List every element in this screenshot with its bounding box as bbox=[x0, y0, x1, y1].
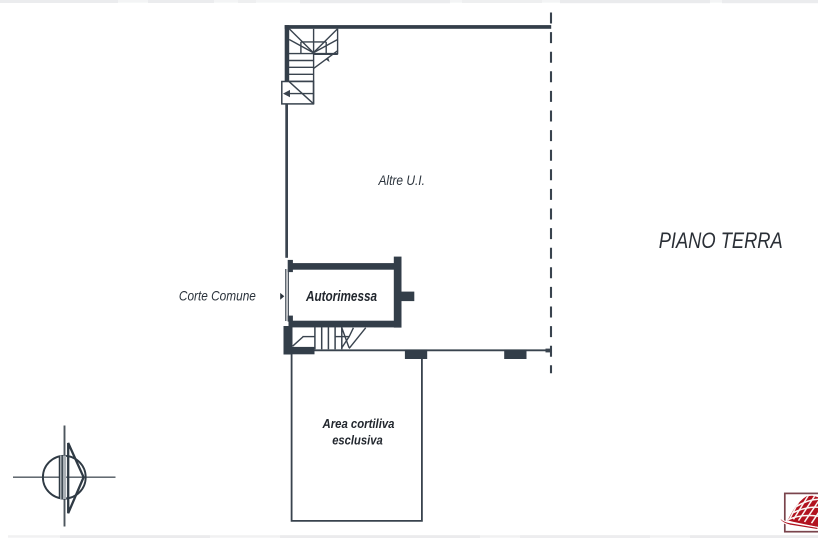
svg-text:PIANO TERRA: PIANO TERRA bbox=[659, 228, 783, 253]
svg-text:Area cortiliva: Area cortiliva bbox=[322, 416, 395, 431]
svg-text:Autorimessa: Autorimessa bbox=[305, 289, 377, 305]
svg-text:esclusiva: esclusiva bbox=[332, 433, 383, 448]
svg-text:Corte Comune: Corte Comune bbox=[179, 289, 256, 304]
svg-text:Altre U.I.: Altre U.I. bbox=[378, 172, 425, 188]
